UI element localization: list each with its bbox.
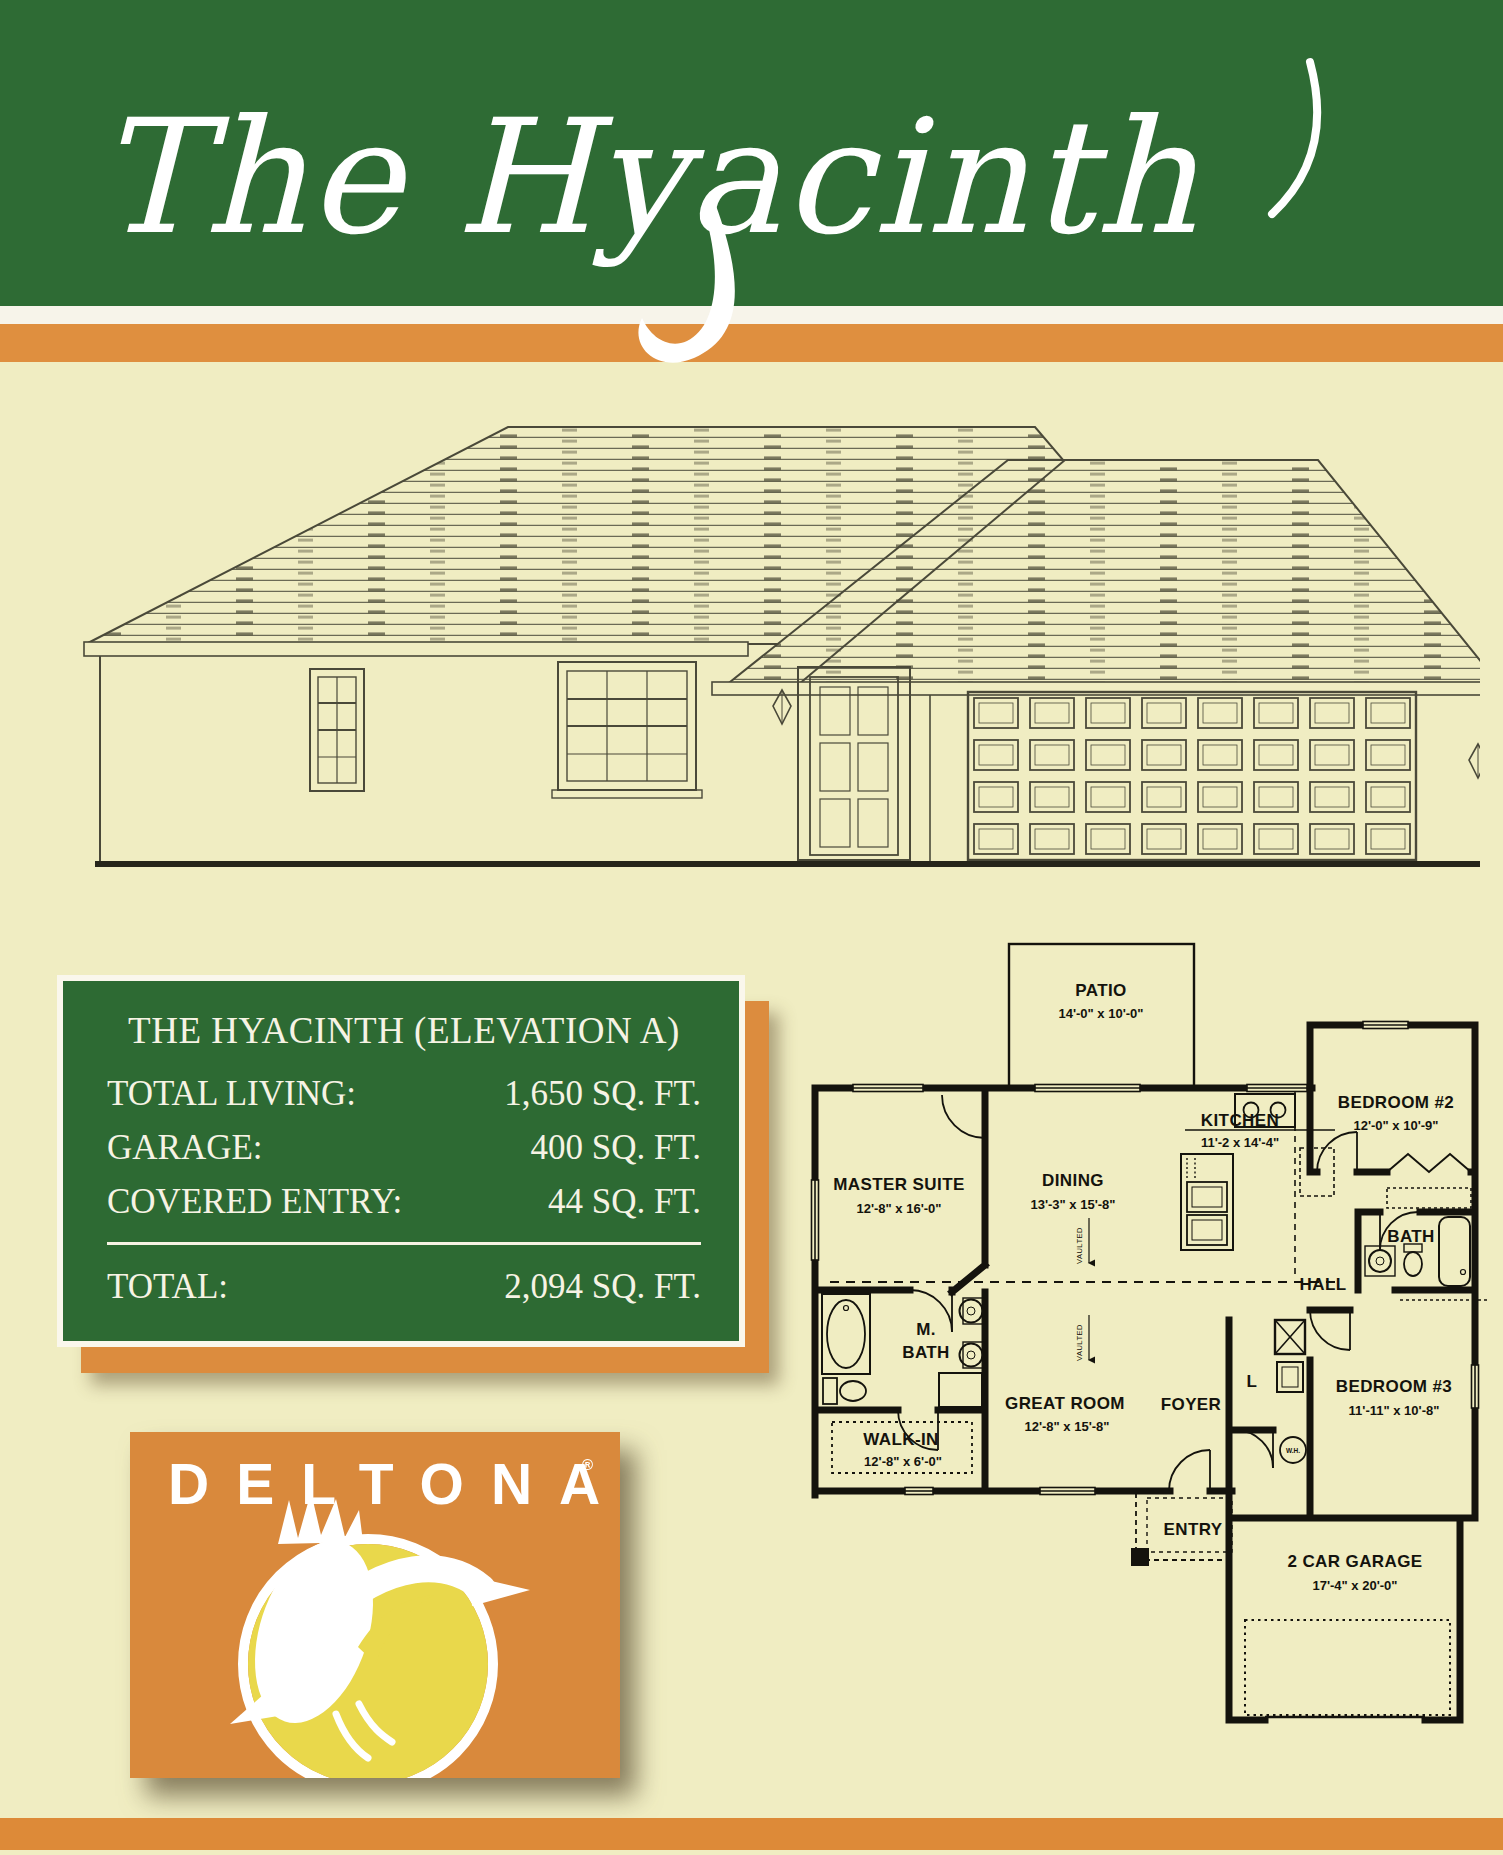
spec-value: 2,094 SQ. FT. [504,1267,701,1307]
room-label-bedroom2: BEDROOM #2 [1338,1093,1454,1112]
logo-brand-text: DELTONA [168,1452,620,1516]
room-label-great-room: GREAT ROOM [1005,1394,1125,1413]
narrow-window [310,669,364,791]
porch-post [1131,1548,1149,1566]
front-door [798,667,910,860]
room-dims-great-room: 12'-8" x 15'-8" [1024,1419,1109,1434]
spec-label: TOTAL: [107,1267,228,1307]
vaulted-label: VAULTED [1075,1227,1084,1264]
room-dims-kitchen: 11'-2 x 14'-4" [1201,1135,1279,1150]
spec-label: GARAGE: [107,1128,263,1168]
room-dims-dining: 13'-3" x 15'-8" [1030,1197,1115,1212]
roof [84,427,1480,695]
brochure-page: The Hyacinth [0,0,1503,1855]
bifold-doors [1387,1154,1471,1172]
spec-label: TOTAL LIVING: [107,1074,356,1114]
house-elevation-drawing [80,372,1480,902]
utility-fixtures [1275,1320,1306,1463]
large-window [552,662,702,798]
room-label-dining: DINING [1042,1171,1104,1190]
water-heater-label: W.H. [1286,1447,1300,1454]
room-label-master-suite: MASTER SUITE [833,1175,964,1194]
room-label-garage: 2 CAR GARAGE [1287,1552,1422,1571]
banner-white-stripe [0,306,1503,324]
room-label-bath: BATH [1387,1227,1435,1246]
room-label-bedroom3: BEDROOM #3 [1336,1377,1452,1396]
deltona-logo: DELTONA ® [130,1432,620,1778]
spec-row-covered-entry: COVERED ENTRY: 44 SQ. FT. [107,1182,701,1222]
room-dims-walkin: 12'-8" x 6'-0" [864,1454,942,1469]
floor-plan: W.H. VAULTED VAULTED PATIO 14'-0" x 10'-… [795,930,1503,1790]
registered-mark-icon: ® [582,1456,593,1473]
spec-value: 44 SQ. FT. [548,1182,701,1222]
vaulted-label: VAULTED [1075,1324,1084,1361]
room-dims-bedroom2: 12'-0" x 10'-9" [1353,1118,1438,1133]
room-label-linen: L [1247,1372,1258,1391]
page-title: The Hyacinth [97,85,1199,269]
room-label-walkin: WALK-IN [863,1430,939,1449]
room-label-entry: ENTRY [1164,1520,1223,1539]
spec-divider [107,1242,701,1245]
header-banner: The Hyacinth [0,0,1503,372]
room-label-foyer: FOYER [1161,1395,1222,1414]
room-label-patio: PATIO [1075,981,1126,1000]
room-label-mbath-1: M. [916,1320,936,1339]
spec-box: THE HYACINTH (ELEVATION A) TOTAL LIVING:… [57,975,745,1347]
room-dims-bedroom3: 11'-11" x 10'-8" [1349,1403,1440,1418]
spec-row-garage: GARAGE: 400 SQ. FT. [107,1128,701,1168]
spec-value: 1,650 SQ. FT. [504,1074,701,1114]
spec-title: THE HYACINTH (ELEVATION A) [107,1009,701,1052]
garage-light-icon [1469,744,1480,778]
room-dims-master-suite: 12'-8" x 16'-0" [856,1201,941,1216]
spec-value: 400 SQ. FT. [531,1128,702,1168]
footer-orange-stripe [0,1818,1503,1850]
banner-orange-stripe [0,324,1503,362]
spec-label: COVERED ENTRY: [107,1182,402,1222]
room-dims-patio: 14'-0" x 10'-0" [1058,1006,1143,1021]
room-label-mbath-2: BATH [902,1343,950,1362]
room-dims-garage: 17'-4" x 20'-0" [1312,1578,1397,1593]
spec-row-total-living: TOTAL LIVING: 1,650 SQ. FT. [107,1074,701,1114]
room-label-hall: HALL [1300,1275,1347,1294]
room-label-kitchen: KITCHEN [1201,1111,1279,1130]
vaulted-markers: VAULTED VAULTED [1075,1218,1089,1361]
garage-door [968,692,1416,860]
spec-row-total: TOTAL: 2,094 SQ. FT. [107,1267,701,1307]
